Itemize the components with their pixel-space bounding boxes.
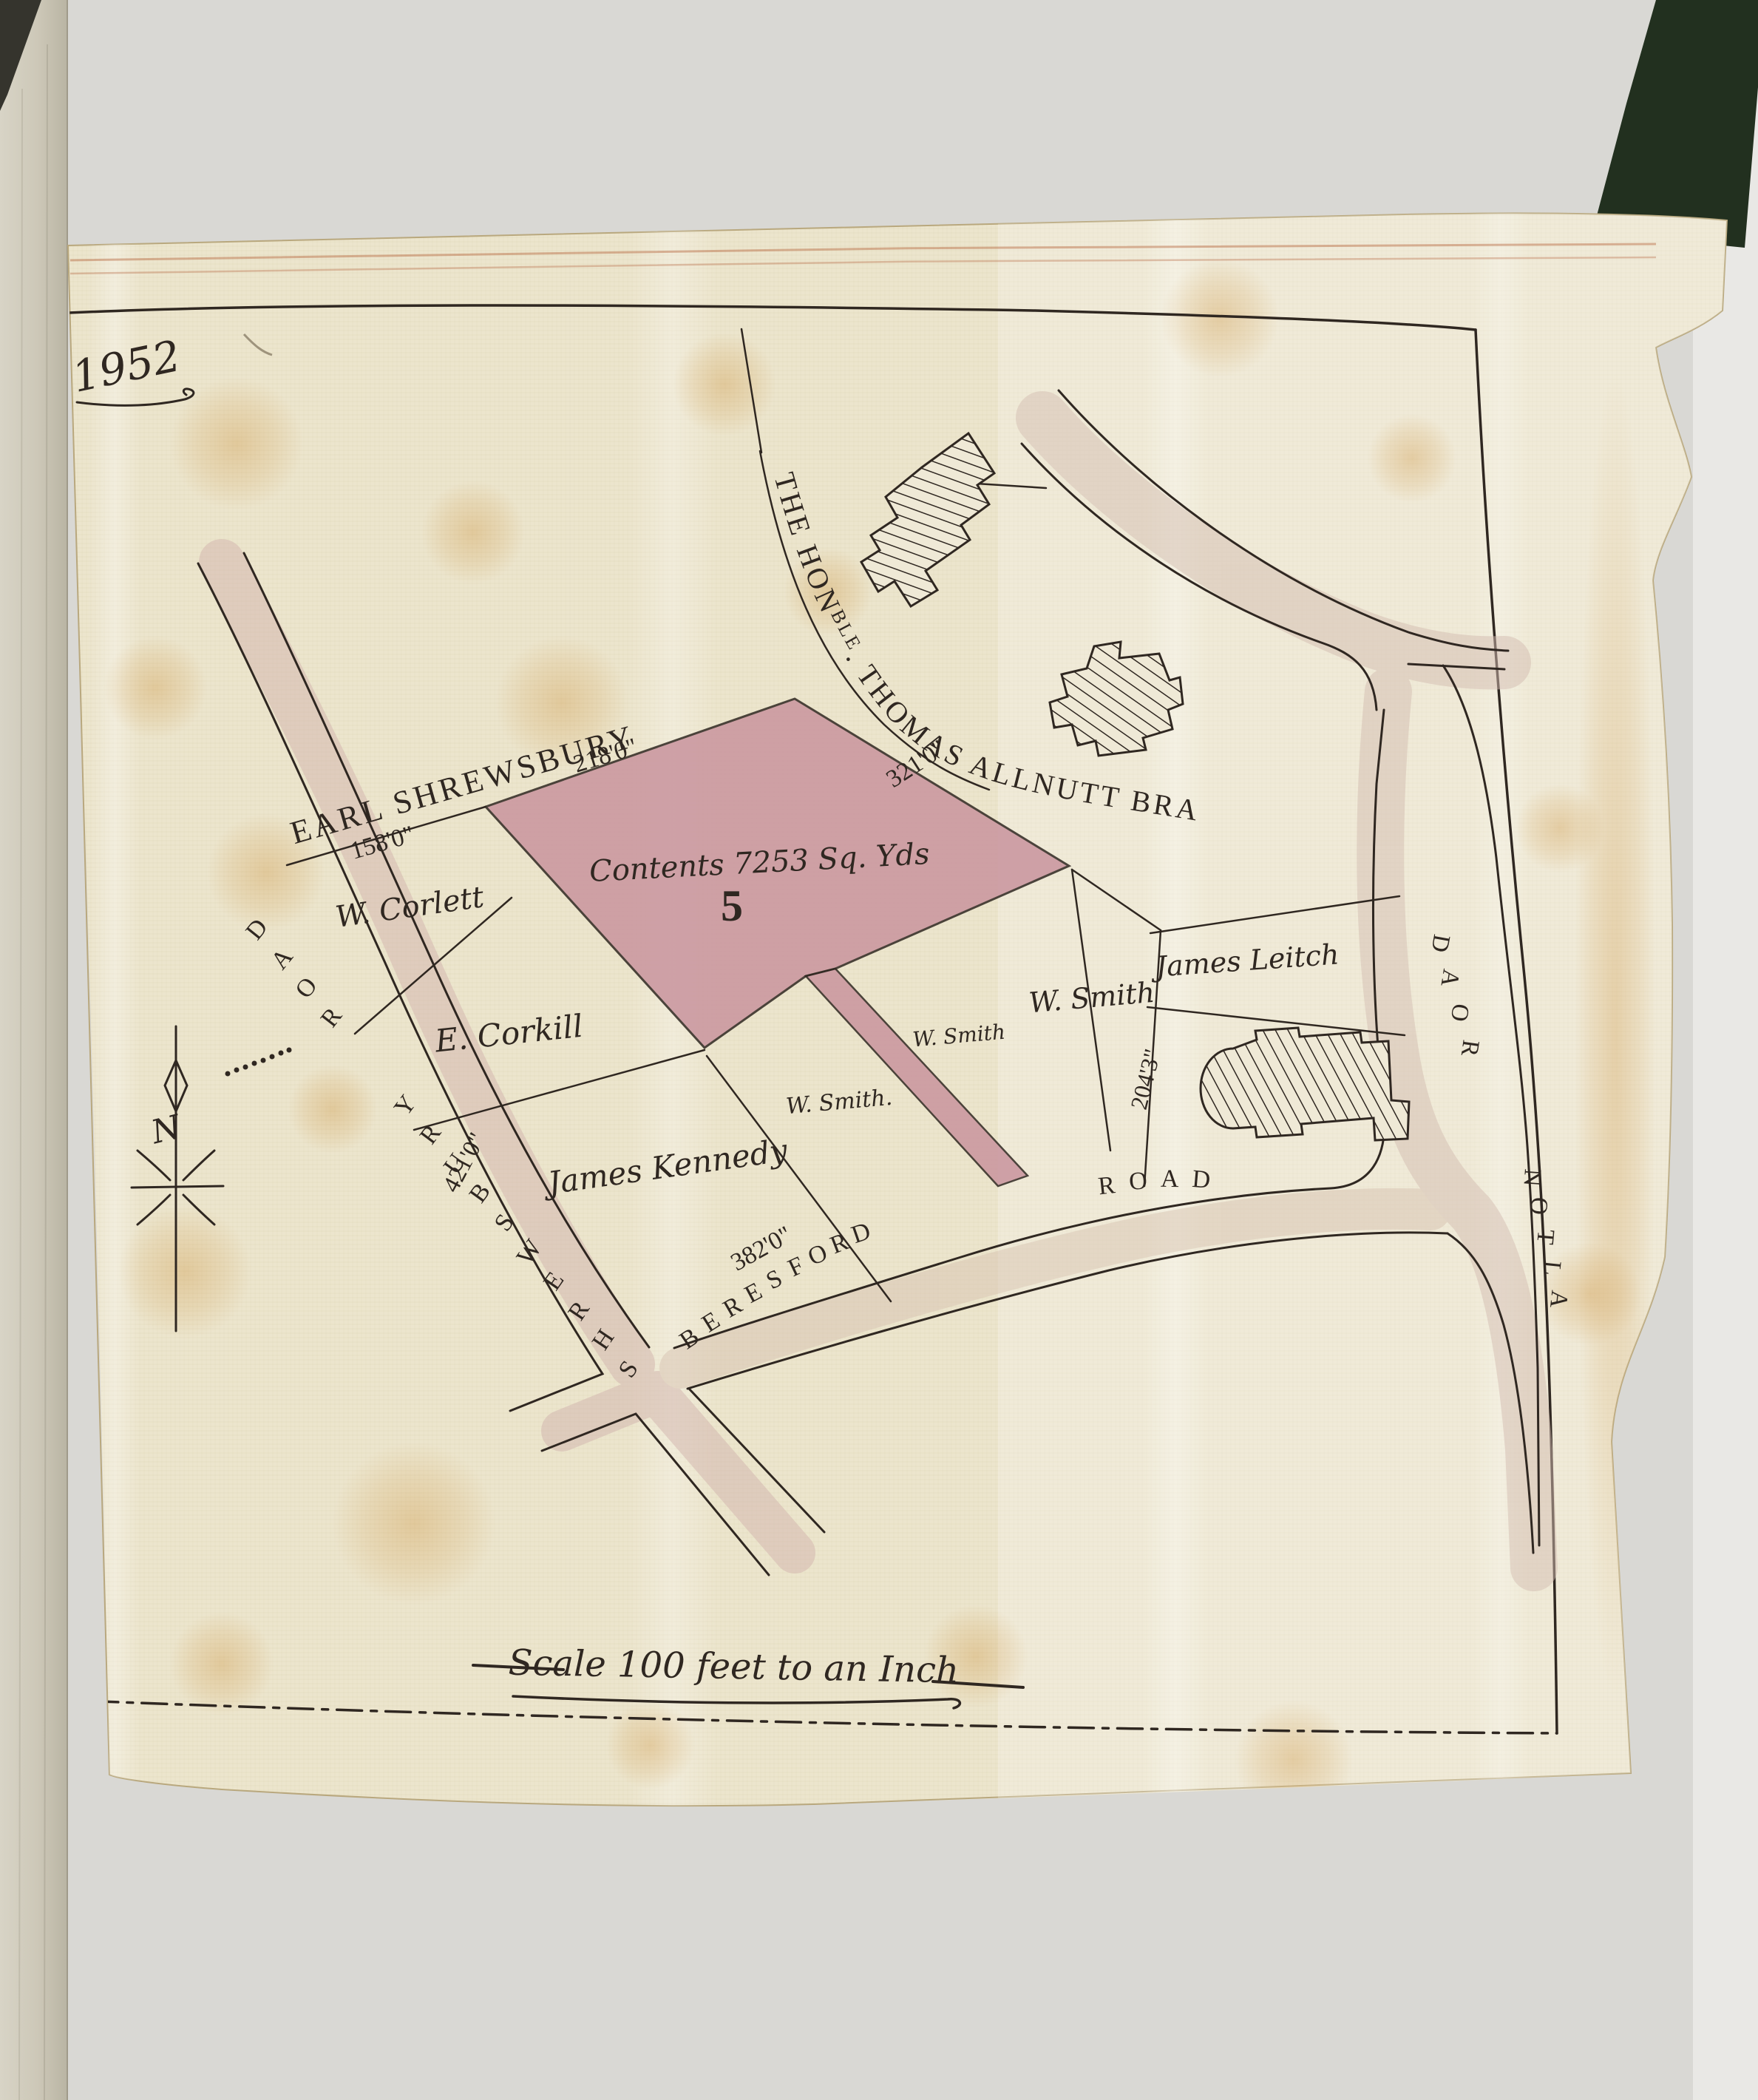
road-beresford-letter-12: D bbox=[1191, 1165, 1215, 1194]
road-alton-upper-letter-1: O bbox=[1445, 1002, 1474, 1026]
sheet-texture bbox=[59, 207, 1758, 1819]
book-page-edges bbox=[0, 0, 68, 2100]
road-alton-upper-letter-2: A bbox=[1435, 967, 1465, 992]
road-beresford-letter-9: R bbox=[1097, 1171, 1119, 1201]
map-sheet: 1952EARL SHREWSBURY158'0"218'0"321'0"421… bbox=[0, 0, 1758, 1819]
plot-number: 5 bbox=[721, 881, 743, 930]
photographed-plan-page: 1952EARL SHREWSBURY158'0"218'0"321'0"421… bbox=[0, 0, 1758, 2100]
scale-note: Scale 100 feet to an Inch bbox=[508, 1642, 959, 1692]
road-alton-lower-letter-4: N bbox=[1518, 1168, 1546, 1190]
road-alton-lower-letter-1: L bbox=[1538, 1259, 1566, 1280]
compass-east-west bbox=[132, 1186, 223, 1188]
road-beresford-letter-11: A bbox=[1161, 1165, 1182, 1193]
road-beresford-letter-10: O bbox=[1128, 1167, 1150, 1195]
road-alton-lower-letter-0: A bbox=[1544, 1289, 1573, 1312]
road-alton-upper-letter-0: R bbox=[1455, 1038, 1484, 1061]
road-alton-lower-letter-3: O bbox=[1524, 1196, 1552, 1219]
survey-plan-svg: 1952EARL SHREWSBURY158'0"218'0"321'0"421… bbox=[0, 0, 1758, 2100]
road-alton-lower-letter-2: T bbox=[1531, 1228, 1559, 1248]
